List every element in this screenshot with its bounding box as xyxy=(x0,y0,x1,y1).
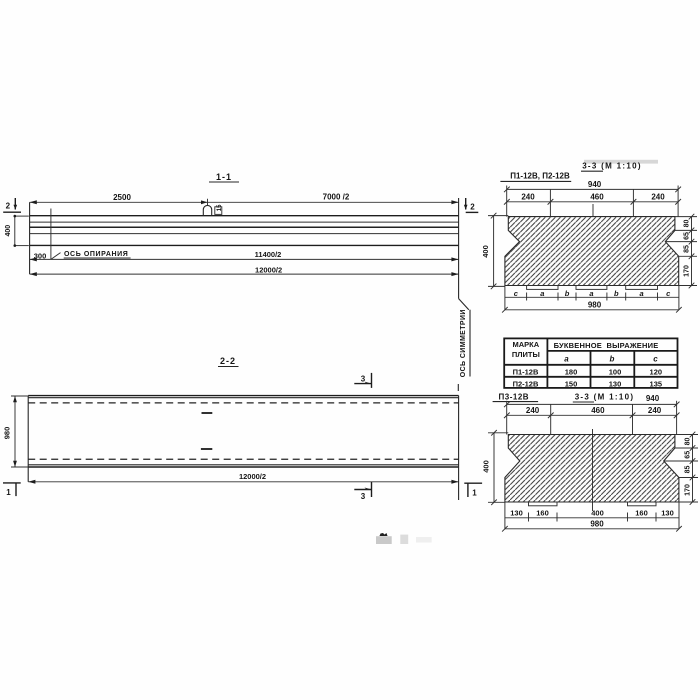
svg-text:b: b xyxy=(610,355,615,364)
svg-text:980: 980 xyxy=(590,520,604,529)
svg-text:b: b xyxy=(565,289,570,298)
svg-text:3-3 (М 1:10): 3-3 (М 1:10) xyxy=(582,162,642,171)
svg-text:11400/2: 11400/2 xyxy=(255,250,282,259)
svg-text:b: b xyxy=(614,289,619,298)
svg-text:300: 300 xyxy=(34,251,47,260)
svg-text:80: 80 xyxy=(684,220,691,228)
svg-text:3: 3 xyxy=(361,375,366,384)
svg-text:1: 1 xyxy=(6,488,11,497)
svg-text:240: 240 xyxy=(651,192,665,201)
svg-text:400: 400 xyxy=(5,225,12,237)
svg-text:130: 130 xyxy=(661,509,674,518)
svg-text:980: 980 xyxy=(3,427,12,440)
svg-text:МАРКА: МАРКА xyxy=(512,340,539,349)
svg-text:120: 120 xyxy=(650,368,663,377)
svg-text:240: 240 xyxy=(521,192,535,201)
svg-text:П1-12В, П2-12В: П1-12В, П2-12В xyxy=(510,172,570,181)
svg-text:940: 940 xyxy=(646,394,660,403)
svg-text:3: 3 xyxy=(361,492,366,501)
svg-text:400: 400 xyxy=(591,509,604,518)
svg-text:7000 /2: 7000 /2 xyxy=(323,193,350,202)
svg-text:240: 240 xyxy=(648,406,662,415)
svg-text:400: 400 xyxy=(482,460,491,473)
svg-text:160: 160 xyxy=(635,509,648,518)
svg-text:a: a xyxy=(564,355,569,364)
svg-text:130: 130 xyxy=(609,379,622,388)
svg-text:135: 135 xyxy=(650,379,663,388)
svg-text:П1-12В: П1-12В xyxy=(513,368,539,377)
svg-text:130: 130 xyxy=(510,509,523,518)
svg-text:85: 85 xyxy=(685,466,692,474)
svg-text:c: c xyxy=(653,355,658,364)
svg-text:240: 240 xyxy=(526,406,540,415)
svg-text:980: 980 xyxy=(588,301,602,310)
svg-text:1-1: 1-1 xyxy=(216,172,232,182)
svg-text:15: 15 xyxy=(217,204,223,211)
svg-text:БУКВЕННОЕ ВЫРАЖЕНИЕ: БУКВЕННОЕ ВЫРАЖЕНИЕ xyxy=(554,341,659,350)
svg-text:П2-12В: П2-12В xyxy=(513,379,539,388)
svg-text:3-3 (М 1:10): 3-3 (М 1:10) xyxy=(575,393,635,402)
svg-text:65: 65 xyxy=(684,232,691,240)
svg-text:400: 400 xyxy=(481,245,490,258)
svg-text:85: 85 xyxy=(684,245,691,253)
svg-text:2500: 2500 xyxy=(113,193,131,202)
svg-text:180: 180 xyxy=(565,368,578,377)
svg-text:65: 65 xyxy=(685,451,692,459)
svg-text:160: 160 xyxy=(536,509,549,518)
svg-text:170: 170 xyxy=(684,265,691,277)
svg-text:2-2: 2-2 xyxy=(220,356,236,366)
svg-text:ПЛИТЫ: ПЛИТЫ xyxy=(512,350,540,359)
svg-text:460: 460 xyxy=(591,406,605,415)
svg-text:П3-12В: П3-12В xyxy=(499,392,530,401)
svg-text:ОСЬ ОПИРАНИЯ: ОСЬ ОПИРАНИЯ xyxy=(64,251,128,258)
svg-text:a: a xyxy=(640,289,644,298)
svg-text:2: 2 xyxy=(6,202,11,211)
svg-text:a: a xyxy=(589,289,593,298)
svg-text:170: 170 xyxy=(685,484,692,496)
svg-text:2: 2 xyxy=(470,203,475,212)
svg-text:12000/2: 12000/2 xyxy=(239,472,266,481)
svg-text:150: 150 xyxy=(565,379,578,388)
svg-text:80: 80 xyxy=(685,438,692,446)
svg-text:1: 1 xyxy=(472,489,477,498)
svg-text:100: 100 xyxy=(609,368,622,377)
svg-text:460: 460 xyxy=(590,192,604,201)
svg-text:12000/2: 12000/2 xyxy=(255,266,282,275)
svg-text:940: 940 xyxy=(588,180,602,189)
svg-text:a: a xyxy=(540,289,544,298)
svg-text:ОСЬ СИММЕТРИИ: ОСЬ СИММЕТРИИ xyxy=(460,309,467,377)
